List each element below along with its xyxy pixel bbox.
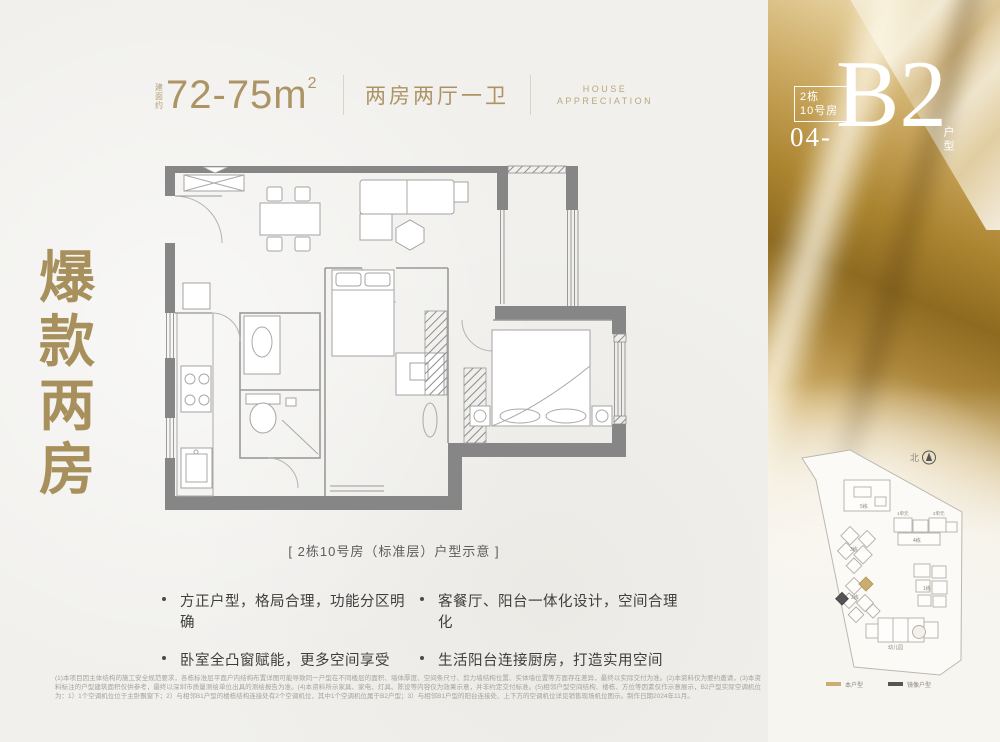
building-1-label: 1栋 <box>923 585 931 592</box>
building-3-label: 3栋 <box>850 546 858 553</box>
feature-item: 卧室全凸窗赋能，更多空间享受 <box>162 649 410 670</box>
slogan-char: 爆 <box>36 246 98 310</box>
feature-text: 生活阳台连接厨房，打造实用空间 <box>438 649 663 670</box>
area-prefix-char: 约 <box>155 101 163 110</box>
bullet-dot-icon <box>162 656 166 660</box>
site-plan: 北 5栋 1单元 2单元 4栋 3栋 2栋 <box>798 446 998 696</box>
unit-suffix: 户型 <box>940 126 956 154</box>
area-value: 72-75m <box>166 73 308 118</box>
area-figure: 建 面 约 72-75m 2 <box>155 73 343 118</box>
feature-text: 方正户型，格局合理，功能分区明确 <box>180 590 410 632</box>
floor-plan <box>148 158 640 530</box>
tagline-line1: HOUSE <box>531 83 679 95</box>
area-prefix: 建 面 约 <box>155 83 163 110</box>
building-2-label: 2栋 <box>851 594 859 601</box>
kindergarten-label: 幼儿园 <box>888 644 903 651</box>
unit-number: 04- <box>790 122 832 153</box>
feature-item: 生活阳台连接厨房，打造实用空间 <box>420 649 682 670</box>
legend-mirror-unit-label: 镜像户型 <box>907 681 931 689</box>
legend-this-unit-swatch <box>826 682 841 686</box>
feature-text: 客餐厅、阳台一体化设计，空间合理化 <box>438 590 682 632</box>
area-superscript: 2 <box>308 75 317 93</box>
north-arrow-icon <box>926 453 932 462</box>
tagline: HOUSE APPRECIATION <box>531 83 679 107</box>
unit2-label: 2单元 <box>933 510 945 517</box>
building-5-label: 5栋 <box>860 503 868 510</box>
area-prefix-char: 面 <box>155 92 163 101</box>
vertical-slogan: 爆 款 两 房 <box>36 246 98 502</box>
legend-mirror-unit-swatch <box>888 682 903 686</box>
slogan-char: 款 <box>36 310 98 374</box>
feature-text: 卧室全凸窗赋能，更多空间享受 <box>180 649 390 670</box>
bullet-dot-icon <box>420 656 424 660</box>
tagline-line2: APPRECIATION <box>531 95 679 107</box>
building-4-label: 4栋 <box>913 537 921 544</box>
bullet-dot-icon <box>162 597 166 601</box>
unit-code: B2 <box>836 44 947 144</box>
area-prefix-char: 建 <box>155 83 163 92</box>
slogan-char: 两 <box>36 374 98 438</box>
unit1-label: 1单元 <box>897 510 909 517</box>
feature-list: 方正户型，格局合理，功能分区明确 客餐厅、阳台一体化设计，空间合理化 卧室全凸窗… <box>162 590 682 670</box>
north-label: 北 <box>910 453 919 463</box>
disclaimer-text: (1)本项目因主体结构的施工安全规范要求，各栋标准层平面户内结构布置详图可能导致… <box>55 674 761 701</box>
floorplan-caption: [ 2栋10号房（标准层）户型示意 ] <box>148 541 640 560</box>
layout-label: 两房两厅一卫 <box>344 80 530 110</box>
bullet-dot-icon <box>420 597 424 601</box>
unit-badge: 2栋 10号房 04- B2 户型 <box>768 0 1000 200</box>
legend-this-unit-label: 本户型 <box>845 681 863 689</box>
feature-item: 方正户型，格局合理，功能分区明确 <box>162 590 410 632</box>
feature-item: 客餐厅、阳台一体化设计，空间合理化 <box>420 590 682 632</box>
header-strip: 建 面 约 72-75m 2 两房两厅一卫 HOUSE APPRECIATION <box>155 70 679 120</box>
slogan-char: 房 <box>36 438 98 502</box>
